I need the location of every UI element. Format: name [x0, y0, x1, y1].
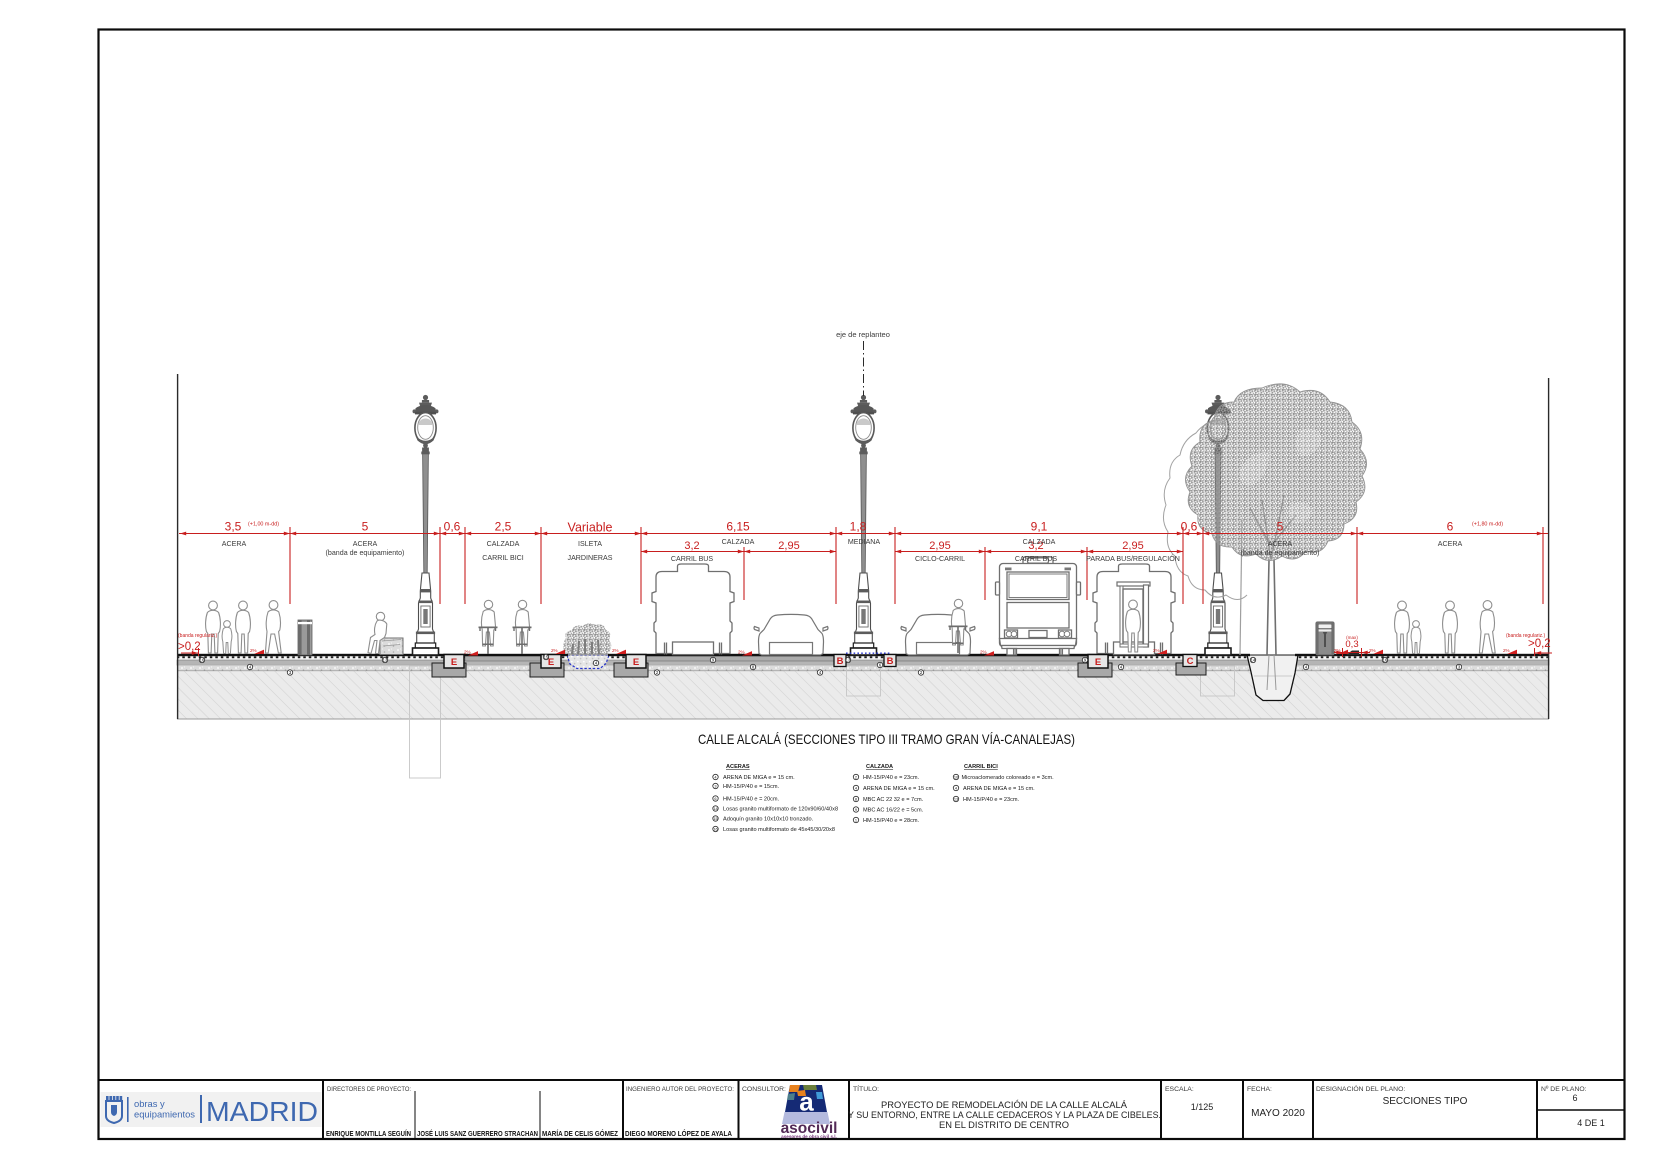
svg-text:2,95: 2,95: [778, 540, 799, 552]
svg-text:(banda de equipamiento): (banda de equipamiento): [326, 549, 405, 557]
svg-text:HM-15/P/40 e = 23cm.: HM-15/P/40 e = 23cm.: [863, 775, 920, 781]
svg-text:TÍTULO:: TÍTULO:: [853, 1084, 879, 1093]
svg-text:6,15: 6,15: [726, 520, 750, 534]
svg-text:5: 5: [362, 520, 369, 534]
svg-text:HM-15/P/40 e = 28cm.: HM-15/P/40 e = 28cm.: [863, 818, 920, 824]
svg-text:2,95: 2,95: [1122, 540, 1143, 552]
svg-text:13: 13: [846, 658, 851, 663]
svg-text:CICLO-CARRIL: CICLO-CARRIL: [915, 555, 965, 563]
svg-text:INGENIERO AUTOR DEL PROYECTO:: INGENIERO AUTOR DEL PROYECTO:: [626, 1086, 734, 1093]
svg-text:MARÍA DE CELIS GÓMEZ: MARÍA DE CELIS GÓMEZ: [542, 1129, 619, 1138]
svg-text:2: 2: [855, 774, 857, 779]
svg-text:MADRID: MADRID: [206, 1096, 318, 1127]
svg-text:9: 9: [855, 807, 857, 812]
svg-text:MAYO 2020: MAYO 2020: [1251, 1108, 1305, 1119]
svg-text:CALZADA: CALZADA: [487, 540, 520, 548]
svg-text:ACERA: ACERA: [222, 540, 247, 548]
svg-text:HM-15/P/40 e = 23cm.: HM-15/P/40 e = 23cm.: [963, 797, 1020, 803]
svg-text:(+1,80 m-dd): (+1,80 m-dd): [1472, 522, 1503, 528]
svg-text:DESIGNACIÓN DEL PLANO:: DESIGNACIÓN DEL PLANO:: [1316, 1084, 1405, 1093]
svg-text:(+1,00 m-dd): (+1,00 m-dd): [248, 522, 279, 528]
svg-text:HM-15/P/40 e = 15cm.: HM-15/P/40 e = 15cm.: [723, 784, 780, 790]
svg-text:1,8: 1,8: [850, 520, 867, 534]
svg-text:3: 3: [714, 783, 716, 788]
svg-text:B: B: [837, 656, 844, 667]
svg-text:1/125: 1/125: [1191, 1102, 1214, 1112]
svg-text:DIEGO MORENO LÓPEZ DE AYALA: DIEGO MORENO LÓPEZ DE AYALA: [625, 1129, 732, 1138]
svg-text:4 DE 1: 4 DE 1: [1577, 1118, 1605, 1128]
svg-text:9,1: 9,1: [1031, 520, 1048, 534]
svg-text:(banda regulariz.): (banda regulariz.): [178, 633, 218, 639]
svg-text:15: 15: [544, 655, 549, 660]
svg-text:6: 6: [714, 796, 716, 801]
svg-text:B: B: [887, 656, 894, 667]
svg-text:PARADA BUS/REGULACIÓN: PARADA BUS/REGULACIÓN: [1086, 554, 1180, 563]
svg-text:16: 16: [200, 658, 205, 663]
svg-text:0,6: 0,6: [444, 520, 461, 534]
svg-text:CALZADA: CALZADA: [1023, 538, 1056, 546]
svg-text:Microaclomerado coloreado e =: Microaclomerado coloreado e = 3cm.: [962, 775, 1055, 781]
svg-text:13: 13: [954, 796, 958, 801]
svg-text:ARENA DE MIGA e = 15 cm.: ARENA DE MIGA e = 15 cm.: [723, 775, 795, 781]
svg-text:5: 5: [1277, 520, 1284, 534]
svg-text:CARRIL BUS: CARRIL BUS: [1015, 555, 1058, 563]
svg-text:13: 13: [383, 658, 388, 663]
svg-text:CARRIL BICI: CARRIL BICI: [482, 554, 524, 562]
svg-text:(banda de equipamiento): (banda de equipamiento): [1241, 549, 1320, 557]
svg-text:>0,2: >0,2: [178, 641, 201, 653]
svg-text:ISLETA: ISLETA: [578, 540, 602, 548]
svg-text:16: 16: [1383, 658, 1388, 663]
svg-text:CONSULTOR:: CONSULTOR:: [742, 1086, 786, 1093]
svg-text:ESCALA:: ESCALA:: [1165, 1086, 1194, 1093]
svg-text:ACERA: ACERA: [1438, 540, 1463, 548]
svg-text:Y SU ENTORNO, ENTRE LA CALLE C: Y SU ENTORNO, ENTRE LA CALLE CEDACEROS Y…: [848, 1110, 1161, 1120]
svg-text:DIRECTORES DE PROYECTO:: DIRECTORES DE PROYECTO:: [327, 1086, 411, 1093]
svg-text:Variable: Variable: [568, 521, 613, 535]
svg-text:2,95: 2,95: [929, 540, 950, 552]
svg-text:ENRIQUE MONTILLA SEGUÍN: ENRIQUE MONTILLA SEGUÍN: [326, 1129, 411, 1138]
svg-text:3,5: 3,5: [225, 520, 242, 534]
svg-text:MBC AC 22 32 e = 7cm.: MBC AC 22 32 e = 7cm.: [863, 797, 924, 803]
svg-text:0,3: 0,3: [1345, 639, 1358, 650]
svg-text:EN EL DISTRITO DE CENTRO: EN EL DISTRITO DE CENTRO: [939, 1120, 1069, 1130]
svg-text:asesores de obra civil s.l.: asesores de obra civil s.l.: [781, 1134, 837, 1139]
svg-text:ACERAS: ACERAS: [726, 764, 750, 770]
svg-text:equipamientos: equipamientos: [134, 1109, 195, 1120]
svg-text:eje de replanteo: eje de replanteo: [836, 330, 890, 339]
svg-text:1: 1: [855, 817, 857, 822]
svg-text:15: 15: [713, 816, 717, 821]
svg-text:CALLE ALCALÁ (SECCIONES TIPO I: CALLE ALCALÁ (SECCIONES TIPO III TRAMO G…: [698, 731, 1075, 747]
svg-text:JOSÉ LUIS SANZ GUERRERO STRACH: JOSÉ LUIS SANZ GUERRERO STRACHAN: [417, 1129, 538, 1138]
svg-text:FECHA:: FECHA:: [1247, 1086, 1272, 1093]
svg-text:ARENA DE MIGA e = 15 cm.: ARENA DE MIGA e = 15 cm.: [863, 786, 935, 792]
svg-text:CARRIL BICI: CARRIL BICI: [964, 764, 998, 770]
svg-text:2,5: 2,5: [495, 520, 512, 534]
svg-text:CALZADA: CALZADA: [722, 538, 755, 546]
svg-text:Losas granito multiformato de: Losas granito multiformato de 120x90/60/…: [723, 807, 838, 813]
svg-text:MEDIANA: MEDIANA: [848, 538, 881, 546]
svg-text:Adoquín granito 10x10x10 tronz: Adoquín granito 10x10x10 tronzado.: [723, 817, 814, 823]
svg-text:MBC AC 16/22 e = 5cm.: MBC AC 16/22 e = 5cm.: [863, 808, 924, 814]
svg-text:6: 6: [1447, 520, 1454, 534]
svg-text:obras y: obras y: [134, 1098, 165, 1109]
svg-text:PROYECTO DE REMODELACIÓN DE LA: PROYECTO DE REMODELACIÓN DE LA CALLE ALC…: [881, 1100, 1128, 1110]
svg-text:3,2: 3,2: [684, 540, 699, 552]
svg-text:JARDINERAS: JARDINERAS: [568, 554, 613, 562]
svg-text:ARENA DE MIGA e = 15 cm.: ARENA DE MIGA e = 15 cm.: [963, 786, 1035, 792]
svg-text:CARRIL BUS: CARRIL BUS: [671, 555, 714, 563]
svg-text:8: 8: [855, 796, 857, 801]
svg-text:14: 14: [1251, 658, 1256, 663]
svg-text:Losas granito multiformato de: Losas granito multiformato de 45x45/30/2…: [723, 827, 835, 833]
svg-text:ACERA: ACERA: [353, 540, 378, 548]
svg-text:Nº DE PLANO:: Nº DE PLANO:: [1541, 1086, 1587, 1093]
svg-text:CALZADA: CALZADA: [866, 764, 893, 770]
svg-text:>0,2: >0,2: [1528, 638, 1551, 650]
svg-text:16: 16: [713, 826, 717, 831]
svg-text:0,6: 0,6: [1181, 520, 1198, 534]
svg-text:SECCIONES TIPO: SECCIONES TIPO: [1383, 1096, 1468, 1107]
svg-text:HM-15/P/40 e = 20cm.: HM-15/P/40 e = 20cm.: [723, 797, 780, 803]
svg-text:C: C: [1187, 656, 1194, 667]
svg-text:6: 6: [1572, 1093, 1577, 1103]
svg-text:ACERA: ACERA: [1268, 540, 1293, 548]
